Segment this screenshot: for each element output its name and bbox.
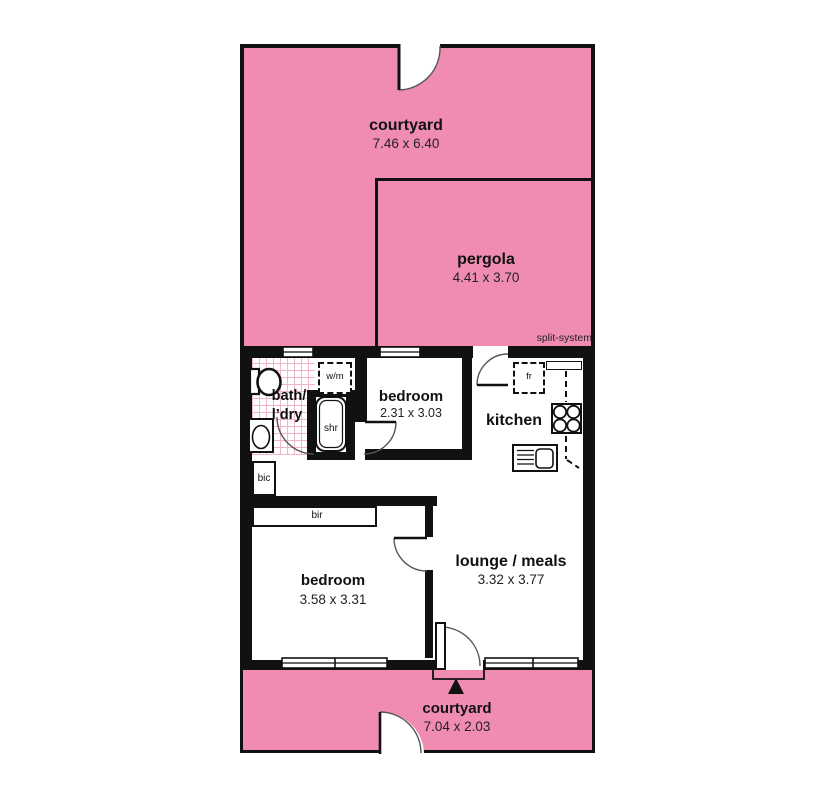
split-system-label: split-system [537,332,592,344]
gate-top-door [399,44,440,90]
built-in-cupboard-label: bic [258,473,271,485]
washing-machine-label: w/m [326,372,343,383]
window-lounge [485,658,578,668]
cooktop-icon [554,406,580,432]
window-bedroom-bottom [282,658,387,668]
sink-icon [517,449,553,468]
pergola-label: pergola [457,251,515,269]
kitchen-label: kitchen [486,412,542,430]
lounge-dims: 3.32 x 3.77 [478,572,545,588]
window-bedroom-top [380,347,420,357]
courtyard-bottom-label: courtyard [422,700,491,717]
porch-step [433,670,484,679]
bedroom-top-dims: 2.31 x 3.03 [380,406,442,420]
kitchen-door [473,346,508,385]
entry-door [436,623,483,670]
bedroom-bottom-door [394,538,427,571]
window-bath [283,347,313,357]
gate-bottom-door [380,712,424,756]
built-in-robe-label: bir [311,510,322,522]
bedroom-top-label: bedroom [379,388,443,405]
pergola-dims: 4.41 x 3.70 [453,270,520,286]
fridge-label: fr [526,372,532,383]
bath-label-line1: bath/ [272,388,307,405]
bedroom-top-door [364,422,396,454]
basin-icon [249,419,273,452]
courtyard-bottom-dims: 7.04 x 2.03 [424,719,491,735]
bath-label-line2: l’dry [272,407,303,424]
bedroom-bottom-dims: 3.58 x 3.31 [300,592,367,608]
floorplan-canvas: courtyard 7.46 x 6.40 pergola 4.41 x 3.7… [0,0,833,800]
courtyard-top-dims: 7.46 x 6.40 [373,136,440,152]
entry-arrow-icon [448,678,464,694]
bedroom-bottom-label: bedroom [301,572,365,589]
lounge-label: lounge / meals [455,553,566,571]
courtyard-top-label: courtyard [369,117,443,135]
shower-label: shr [324,423,338,435]
